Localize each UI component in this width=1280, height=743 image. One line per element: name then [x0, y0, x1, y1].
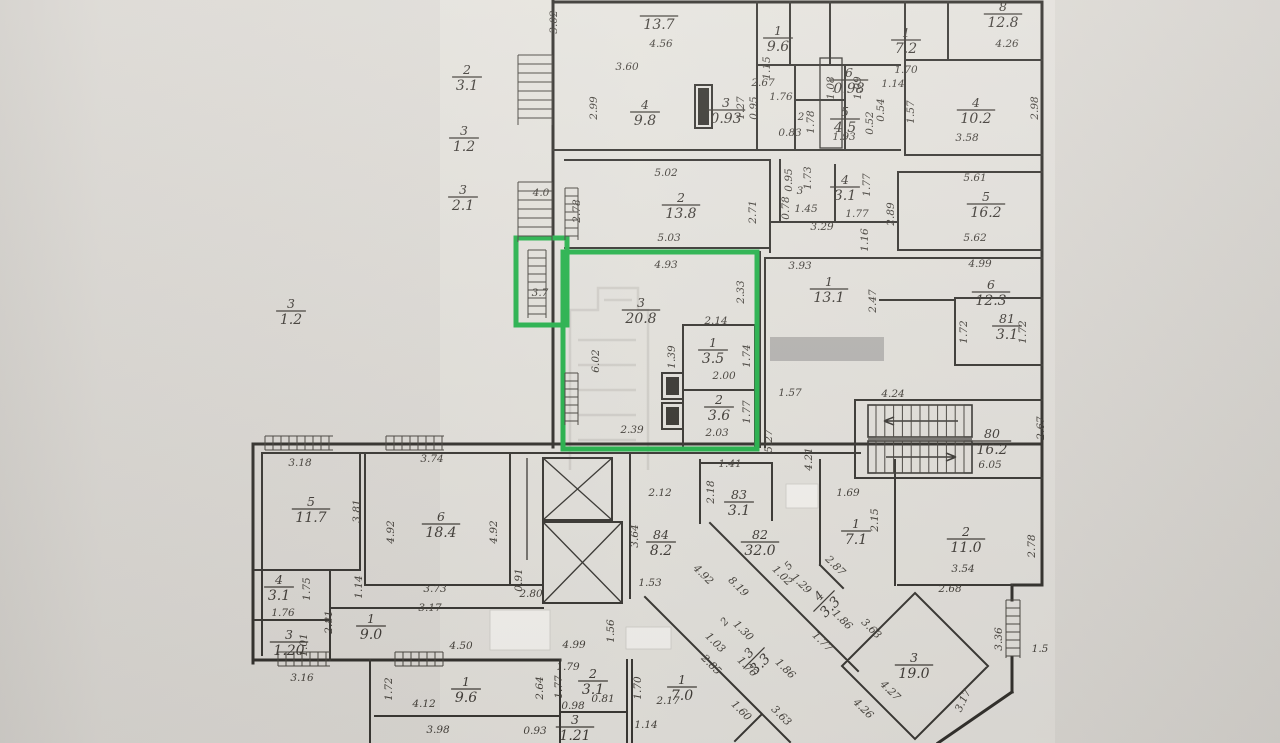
dimension-label: 1.76 [271, 607, 295, 619]
dimension-label: 1.72 [1017, 320, 1029, 344]
dimension-label: 1.77 [861, 173, 873, 197]
room-area: 13.8 [665, 206, 696, 222]
dimension-label: 3.02 [548, 10, 560, 34]
room-number: 80 [984, 426, 1000, 441]
room-area: 3.5 [702, 351, 724, 367]
dimension-label: 5.27 [763, 429, 775, 453]
dimension-label: 1.14 [881, 78, 904, 90]
room-area: 13.7 [643, 17, 674, 33]
room-number: 3 [910, 650, 918, 665]
room-area: 13.1 [813, 290, 844, 306]
dimension-label: 2.18 [705, 480, 717, 505]
room-area: 1.2 [280, 312, 302, 328]
room-number: 3 [459, 182, 467, 197]
dimension-label: 2.33 [735, 280, 747, 305]
room-number: 4 [840, 172, 849, 187]
dimension-label: 3.98 [426, 724, 450, 736]
dimension-label: 1.73 [802, 166, 814, 190]
dimension-label: 2.99 [588, 96, 600, 121]
room-area: 32.0 [744, 543, 775, 559]
room-number: 1 [709, 335, 717, 350]
room-number: 1 [852, 516, 860, 531]
room-area: 3.1 [582, 682, 604, 698]
room-number: 2 [961, 524, 970, 539]
dimension-label: 2.47 [867, 289, 879, 314]
dimension-label: 4.21 [803, 447, 815, 471]
room-number: 5 [841, 104, 849, 119]
room-area: 9.0 [360, 627, 382, 643]
dimension-label: 3.60 [615, 61, 639, 73]
dimension-label: 1.56 [605, 619, 617, 643]
dimension-label: 1.70 [632, 676, 644, 700]
dimension-label: 4.56 [648, 38, 673, 50]
room-number: 6 [845, 65, 853, 80]
dimension-label: 1.76 [769, 91, 793, 103]
room-number: 4 [640, 97, 649, 112]
dimension-label: 2.03 [704, 427, 729, 439]
dimension-label: 1.72 [958, 320, 970, 344]
room-number: 1 [462, 674, 470, 689]
dimension-label: 0.93 [523, 725, 547, 737]
room-area: 7.0 [671, 688, 693, 704]
dimension-label: 4.92 [385, 520, 397, 545]
room-area: 1.2 [453, 139, 475, 155]
room-label: 31.20 [270, 627, 308, 659]
dimension-label: 0.52 [864, 111, 876, 135]
room-number: 5 [982, 189, 990, 204]
dimension-label: 6.05 [978, 459, 1002, 471]
room-number: 3 [722, 95, 730, 110]
dimension-label: 4.24 [880, 388, 904, 400]
redaction-gray-box [770, 337, 884, 361]
dimension-label: 0.95 [748, 96, 760, 120]
room-area: 3.1 [456, 78, 478, 94]
dimension-label: 6.02 [590, 349, 602, 373]
room-number: 1 [367, 611, 375, 626]
room-number: 2 [588, 666, 597, 681]
dimension-label: 1.74 [741, 344, 753, 367]
dimension-label: 2.78 [1026, 534, 1038, 559]
dimension-label: 0.78 [780, 196, 792, 220]
room-number: 3 [287, 296, 295, 311]
room-area: 0.98 [833, 81, 864, 97]
room-area: 3.1 [728, 503, 750, 519]
dimension-label: 4.26 [994, 38, 1019, 50]
room-area: 3.1 [996, 327, 1018, 343]
room-label: 13.7 [640, 16, 678, 33]
dimension-label: 3.29 [810, 221, 834, 233]
dimension-label: 1.70 [894, 64, 918, 76]
dimension-label: 1.16 [859, 228, 871, 252]
dimension-label: 3.81 [351, 499, 363, 522]
room-area: 3.6 [708, 408, 730, 424]
room-area: 3.1 [834, 188, 856, 204]
dimension-label: 1.57 [905, 100, 917, 124]
room-area: 18.4 [425, 525, 456, 541]
dimension-label: 0.95 [783, 168, 795, 192]
room-number: 81 [999, 311, 1015, 326]
room-number: 82 [752, 527, 768, 542]
room-number: 6 [437, 509, 445, 524]
dimension-label: 3.73 [423, 583, 447, 595]
dimension-label: 1.77 [845, 208, 869, 220]
room-area: 4.5 [833, 120, 856, 136]
dimension-label: 1.53 [638, 577, 662, 589]
dimension-label: 2.98 [1029, 96, 1041, 121]
dimension-label: 5.61 [963, 172, 986, 184]
room-area: 1.20 [273, 643, 304, 659]
dimension-label: 1.77 [741, 400, 753, 424]
room-number: 3 [460, 123, 468, 138]
room-area: 3.1 [268, 588, 290, 604]
dimension-label: 2 [797, 111, 805, 123]
dimension-label: 3.93 [788, 260, 812, 272]
dimension-label: 3.74 [420, 453, 443, 465]
dimension-label: 2.00 [711, 370, 736, 382]
dimension-label: 3.7 [532, 287, 549, 299]
room-area: 20.8 [624, 311, 656, 327]
redaction-white-box [626, 627, 671, 649]
room-area: 0.93 [710, 111, 741, 127]
room-label: 31.2 [276, 296, 306, 328]
room-area: 7.2 [895, 41, 917, 57]
dimension-label: 4.92 [488, 520, 500, 545]
dimension-label: 4.0 [532, 187, 550, 199]
room-area: 8.2 [650, 543, 672, 559]
dimension-label: 1.45 [794, 203, 818, 215]
dimension-label: 1.14 [353, 575, 365, 598]
dimension-label: 1.14 [634, 719, 657, 731]
room-number: 8 [999, 0, 1007, 14]
dimension-label: 4.93 [653, 259, 678, 271]
dimension-label: 3.64 [629, 524, 641, 547]
scanned-floorplan-page: 4.03.723254.563.602.993.021.152.671.270.… [0, 0, 1280, 743]
room-number: 1 [678, 672, 686, 687]
dimension-label: 2.81 [323, 610, 335, 634]
room-number: 2 [462, 62, 471, 77]
dimension-label: 3.16 [290, 672, 314, 684]
room-number: 84 [653, 527, 669, 542]
dimension-label: 2.67 [750, 77, 775, 89]
room-number: 6 [987, 277, 995, 292]
redaction-white-box [786, 484, 818, 508]
dimension-label: 5.62 [963, 232, 987, 244]
dimension-label: 2.68 [937, 583, 962, 595]
room-number: 3 [285, 627, 293, 642]
room-number: 2 [676, 190, 685, 205]
room-area: 9.8 [634, 113, 656, 129]
dimension-label: 2.14 [703, 315, 727, 327]
dimension-label: 2.12 [647, 487, 672, 499]
room-number: 4 [274, 572, 283, 587]
room-label: 43.1 [264, 572, 294, 604]
dimension-label: 2.71 [747, 200, 759, 224]
dimension-label: 2.78 [571, 199, 583, 224]
room-area: 16.2 [970, 205, 1001, 221]
room-area: 12.3 [975, 293, 1006, 309]
dimension-label: 1.39 [666, 345, 678, 369]
room-area: 2.1 [451, 198, 474, 214]
dimension-label: 3.54 [951, 563, 974, 575]
room-label: 511.7 [292, 494, 330, 526]
redaction-white-box [490, 610, 550, 650]
dimension-label: 0.83 [778, 127, 802, 139]
room-area: 11.7 [295, 510, 326, 526]
dimension-label: 1.75 [301, 577, 313, 601]
room-area: 9.6 [767, 39, 789, 55]
room-number: 1 [825, 274, 833, 289]
dimension-label: 3.18 [288, 457, 312, 469]
dimension-label: 2.89 [885, 202, 897, 227]
dimension-label: 3.36 [993, 627, 1005, 651]
dimension-label: 0.98 [561, 700, 585, 712]
room-area: 19.0 [898, 666, 929, 682]
room-area: 7.1 [845, 532, 867, 548]
dimension-label: 3.58 [955, 132, 979, 144]
room-number: 2 [714, 392, 723, 407]
dimension-label: 1.57 [778, 387, 802, 399]
dimension-label: 1.77 [553, 675, 565, 699]
room-number: 3 [571, 712, 579, 727]
room-number: 1 [774, 23, 782, 38]
dimension-label: 4.99 [967, 258, 992, 270]
room-area: 10.2 [960, 111, 991, 127]
dimension-label: 4.99 [561, 639, 586, 651]
dimension-label: 1.69 [836, 487, 860, 499]
room-number: 5 [307, 494, 315, 509]
dimension-label: 1.41 [718, 458, 741, 470]
dimension-label: 4.50 [448, 640, 473, 652]
dimension-label: 5.03 [657, 232, 681, 244]
dimension-label: 0.54 [875, 98, 887, 121]
dimension-label: 5.02 [654, 167, 678, 179]
room-area: 9.6 [455, 690, 477, 706]
room-area: 12.8 [987, 15, 1018, 31]
dimension-label: 4.12 [411, 698, 436, 710]
floorplan-svg: 4.03.723254.563.602.993.021.152.671.270.… [0, 0, 1280, 743]
dimension-label: 3.17 [418, 602, 442, 614]
dimension-label: 2.67 [1035, 416, 1047, 441]
room-area: 11.0 [950, 540, 981, 556]
dimension-label: 1.78 [805, 110, 817, 134]
dimension-label: 2.64 [534, 676, 546, 700]
dimension-label: 1.5 [1032, 643, 1049, 655]
dimension-label: 2.39 [619, 424, 644, 436]
dimension-label: 1.79 [556, 661, 580, 673]
room-number: 83 [731, 487, 747, 502]
dimension-label: 1.72 [383, 677, 395, 701]
room-label: 19.0 [356, 611, 386, 643]
room-number: 3 [637, 295, 645, 310]
room-area: 1.21 [559, 728, 590, 743]
room-number: 4 [971, 95, 980, 110]
room-area: 16.2 [976, 442, 1007, 458]
dimension-label: 2.15 [869, 508, 881, 533]
room-number: 1 [902, 25, 910, 40]
dimension-label: 2.80 [518, 588, 543, 600]
